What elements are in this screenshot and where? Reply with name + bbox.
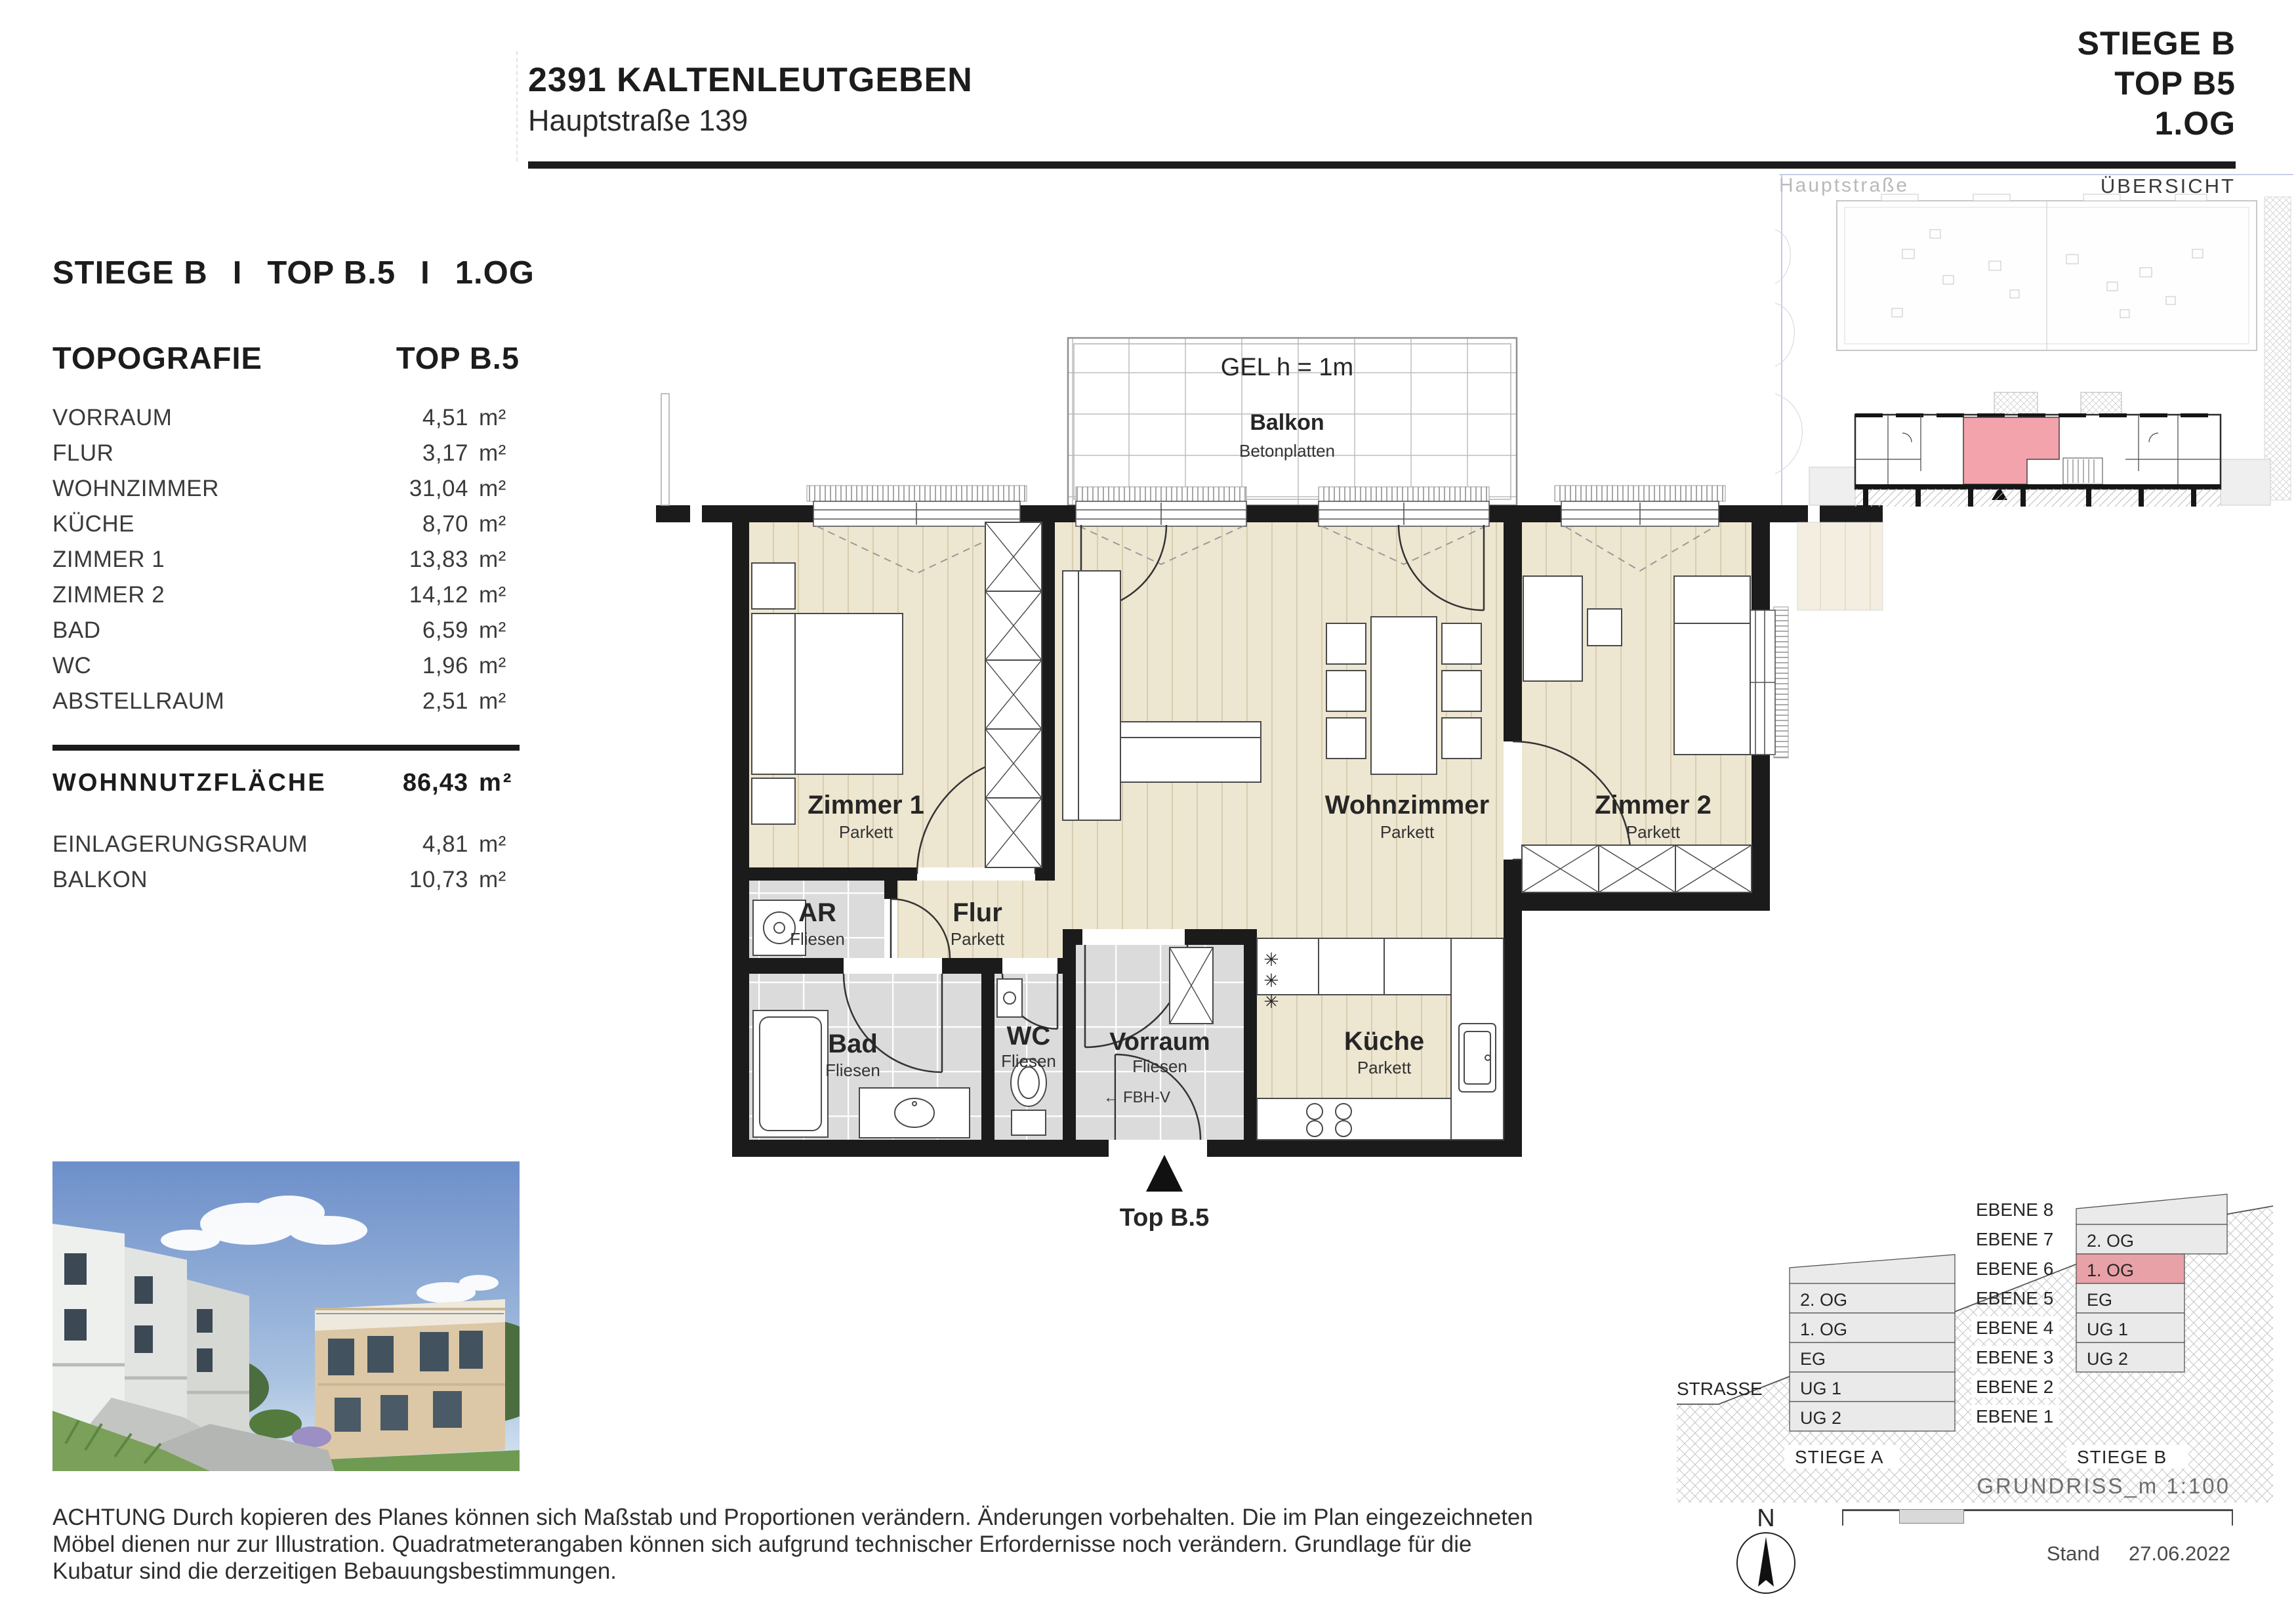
fbhv-arrow-icon: ←: [1103, 1089, 1119, 1106]
scale-bar-segment: [1899, 1509, 1964, 1524]
balcony-gel-label: GEL h = 1m: [1221, 354, 1353, 381]
strasse-label: STRASSE: [1677, 1379, 1763, 1399]
room-label-vorraum: Vorraum: [1109, 1028, 1210, 1056]
topografie-table: TOPOGRAFIE TOP B.5 VORRAUM4,51m² FLUR3,1…: [52, 340, 520, 902]
balcony: GEL h = 1m Balkon Betonplatten: [1068, 338, 1517, 505]
svg-text:✳: ✳: [1263, 970, 1279, 991]
room-label-bad: Bad: [828, 1030, 878, 1058]
svg-text:✳: ✳: [1263, 991, 1279, 1012]
room-label-flur: Flur: [953, 898, 1002, 927]
north-compass-icon: N: [1725, 1500, 1807, 1598]
section-diagram: 2. OG 1. OG EG UG 1 UG 2 2. OG 1. OG EG …: [1653, 1181, 2296, 1509]
svg-text:2. OG: 2. OG: [2087, 1231, 2134, 1251]
svg-text:EBENE 4: EBENE 4: [1976, 1318, 2053, 1338]
svg-text:Fliesen: Fliesen: [1132, 1056, 1187, 1076]
stiege-a-label: STIEGE A: [1795, 1447, 1884, 1467]
table-total-row: WOHNNUTZFLÄCHE 86,43 m²: [52, 769, 520, 797]
floor-plan: GEL h = 1m Balkon Betonplatten: [649, 325, 1909, 1243]
header-top: TOP B5: [1771, 64, 2236, 104]
svg-text:EBENE 7: EBENE 7: [1976, 1229, 2053, 1249]
svg-text:Parkett: Parkett: [1626, 822, 1681, 842]
stack-stiege-a: 2. OG 1. OG EG UG 1 UG 2: [1790, 1255, 1955, 1431]
svg-text:UG 1: UG 1: [2087, 1320, 2128, 1339]
svg-text:Parkett: Parkett: [1357, 1058, 1412, 1077]
svg-text:Fliesen: Fliesen: [825, 1060, 880, 1080]
room-label-zimmer2: Zimmer 2: [1595, 791, 1712, 820]
heading-separator: I: [420, 255, 430, 291]
disclaimer-text: ACHTUNG Durch kopieren des Planes können…: [52, 1504, 1706, 1585]
plan-heading: STIEGE B I TOP B.5 I 1.OG: [52, 255, 535, 291]
svg-text:UG 2: UG 2: [2087, 1349, 2128, 1369]
entrance-label: Top B.5: [1120, 1204, 1210, 1232]
svg-text:EBENE 1: EBENE 1: [1976, 1406, 2053, 1426]
table-total-rule: [52, 745, 520, 751]
table-row: BAD6,59m²: [52, 617, 520, 653]
header-rule: [528, 161, 2236, 169]
svg-text:EBENE 2: EBENE 2: [1976, 1377, 2053, 1397]
table-row: KÜCHE8,70m²: [52, 511, 520, 547]
table-row: VORRAUM4,51m²: [52, 405, 520, 440]
building-rendering-photo: [52, 1161, 520, 1471]
room-label-kueche: Küche: [1344, 1027, 1424, 1056]
table-row: BALKON10,73m²: [52, 867, 520, 902]
stand-label: Stand: [2047, 1542, 2100, 1566]
terrain-contours: [1775, 230, 1802, 474]
plan-heading-top: TOP B.5: [267, 255, 396, 291]
svg-text:Parkett: Parkett: [1380, 822, 1435, 842]
header-separator-line: [516, 51, 518, 161]
svg-text:UG 2: UG 2: [1800, 1408, 1841, 1428]
svg-text:EBENE 8: EBENE 8: [1976, 1199, 2053, 1220]
heading-separator: I: [233, 255, 243, 291]
stand-date: 27.06.2022: [2129, 1542, 2230, 1566]
room-label-wohnzimmer: Wohnzimmer: [1325, 791, 1489, 820]
svg-text:N: N: [1757, 1505, 1774, 1532]
plan-date: Stand 27.06.2022: [1968, 1542, 2230, 1566]
header-floor: 1.OG: [1771, 104, 2236, 144]
roof-plan: [1837, 194, 2257, 350]
table-row: ABSTELLRAUM2,51m²: [52, 688, 520, 724]
svg-text:EBENE 6: EBENE 6: [1976, 1259, 2053, 1279]
entrance-arrow-icon: [1146, 1155, 1183, 1192]
side-hatch: [2265, 197, 2291, 500]
svg-text:Fliesen: Fliesen: [790, 929, 845, 949]
header-stiege: STIEGE B: [1771, 24, 2236, 64]
svg-text:2. OG: 2. OG: [1800, 1290, 1847, 1310]
svg-text:EG: EG: [2087, 1290, 2112, 1310]
svg-text:UG 1: UG 1: [1800, 1379, 1841, 1398]
table-extra-rows: EINLAGERUNGSRAUM4,81m² BALKON10,73m²: [52, 831, 520, 902]
stiege-b-label: STIEGE B: [2077, 1447, 2167, 1467]
table-row: WC1,96m²: [52, 653, 520, 688]
entrance-marker: Top B.5: [1120, 1155, 1210, 1232]
table-column-title: TOP B.5: [396, 340, 520, 376]
table-row: WOHNZIMMER31,04m²: [52, 476, 520, 511]
svg-text:Parkett: Parkett: [951, 929, 1005, 949]
scale-bar: [1842, 1509, 2233, 1526]
svg-text:✳: ✳: [1263, 949, 1279, 970]
fbhv-label: FBH-V: [1123, 1089, 1170, 1106]
building-strip: [1809, 392, 2270, 507]
room-label-wc: WC: [1007, 1022, 1051, 1051]
page-title: 2391 KALTENLEUTGEBEN: [528, 60, 973, 100]
table-title: TOPOGRAFIE: [52, 340, 262, 376]
svg-text:1. OG: 1. OG: [2087, 1260, 2134, 1280]
right-building: [315, 1299, 505, 1460]
svg-text:EBENE 5: EBENE 5: [1976, 1288, 2053, 1308]
room-label-balkon: Balkon: [1250, 410, 1324, 435]
page-address: Hauptstraße 139: [528, 104, 748, 138]
header-unit-block: STIEGE B TOP B5 1.OG: [1771, 24, 2236, 144]
svg-text:EBENE 3: EBENE 3: [1976, 1347, 2053, 1367]
table-row: ZIMMER 214,12m²: [52, 582, 520, 617]
svg-text:1. OG: 1. OG: [1800, 1320, 1847, 1339]
table-row: EINLAGERUNGSRAUM4,81m²: [52, 831, 520, 867]
plan-heading-stiege: STIEGE B: [52, 255, 208, 291]
overview-map: [1771, 172, 2296, 510]
room-label-zimmer1: Zimmer 1: [808, 791, 924, 820]
coat-hooks-icon: ✳ ✳ ✳: [1263, 949, 1279, 1012]
plan-heading-floor: 1.OG: [455, 255, 535, 291]
svg-text:Parkett: Parkett: [839, 822, 893, 842]
table-row: ZIMMER 113,83m²: [52, 547, 520, 582]
scale-label: GRUNDRISS_m 1:100: [1837, 1474, 2230, 1499]
svg-text:EG: EG: [1800, 1349, 1826, 1369]
room-floor-balkon: Betonplatten: [1239, 441, 1335, 461]
svg-text:Fliesen: Fliesen: [1001, 1051, 1056, 1071]
room-label-ar: AR: [798, 898, 836, 927]
table-row: FLUR3,17m²: [52, 440, 520, 476]
